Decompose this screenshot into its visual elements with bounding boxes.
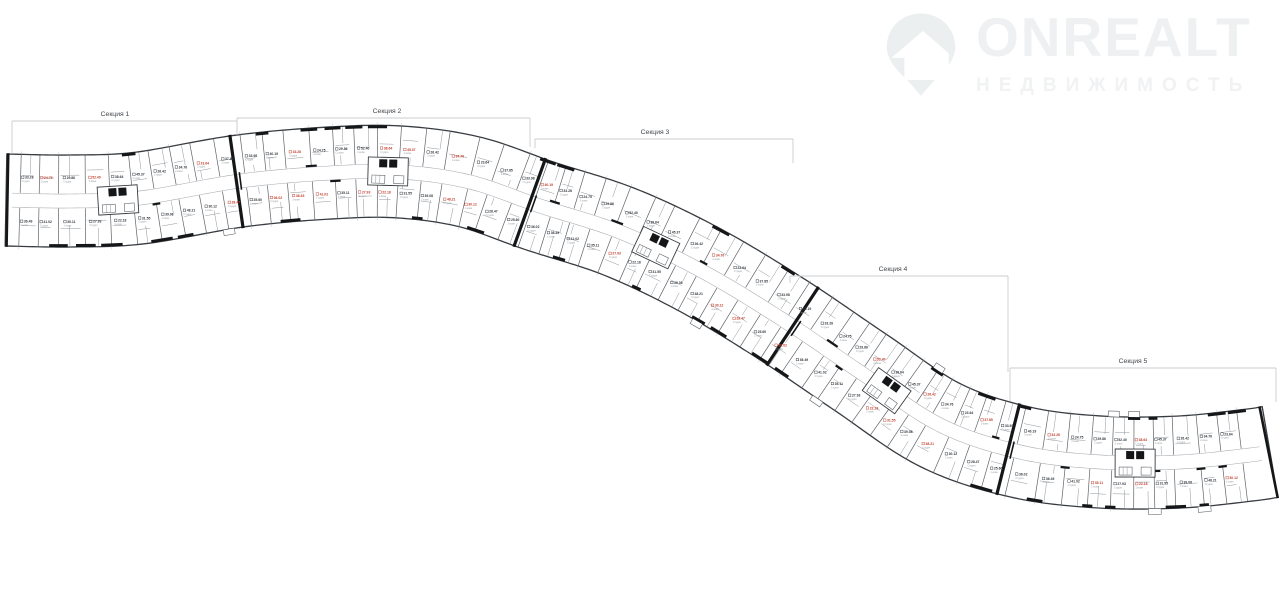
svg-text:40.19: 40.19 [803,307,812,311]
svg-text:1-комн: 1-комн [1135,486,1143,489]
svg-text:35.11: 35.11 [67,220,75,224]
svg-text:26.42: 26.42 [927,392,936,396]
svg-text:Студия: Студия [358,195,367,198]
svg-text:Студия: Студия [477,165,486,168]
svg-text:Студия: Студия [856,350,865,353]
svg-text:38.64: 38.64 [895,371,904,375]
section-label: Секция 3 [641,129,670,136]
svg-text:25.60: 25.60 [994,467,1003,471]
svg-text:28.47: 28.47 [489,210,498,214]
svg-text:24.75: 24.75 [583,195,592,199]
svg-text:Студия: Студия [1177,441,1186,444]
svg-text:28.47: 28.47 [736,317,745,321]
svg-text:31.55: 31.55 [652,270,661,274]
svg-text:37.85: 37.85 [225,157,234,161]
svg-text:45.37: 45.37 [136,173,145,177]
svg-text:33.98: 33.98 [526,177,535,181]
svg-text:26.42: 26.42 [695,242,704,246]
svg-text:1-комн: 1-комн [162,217,170,220]
svg-text:30.12: 30.12 [208,205,217,209]
svg-text:45.37: 45.37 [1158,438,1167,442]
svg-text:1-комн: 1-комн [1042,481,1050,484]
svg-text:30.12: 30.12 [715,304,724,308]
svg-text:26.42: 26.42 [430,150,439,154]
svg-text:40.19: 40.19 [545,183,554,187]
svg-text:23.64: 23.64 [965,411,974,415]
svg-text:38.64: 38.64 [650,220,659,224]
svg-text:Студия: Студия [892,375,901,378]
svg-text:34.76: 34.76 [456,154,465,158]
svg-text:23.64: 23.64 [737,266,746,270]
svg-text:Студия: Студия [1205,483,1214,486]
svg-text:40.19: 40.19 [270,152,279,156]
svg-text:Студия: Студия [316,197,325,200]
svg-text:39.08: 39.08 [904,430,913,434]
svg-text:1-комн: 1-комн [1091,485,1099,488]
svg-text:Студия: Студия [602,206,611,209]
svg-text:28.47: 28.47 [971,460,980,464]
svg-text:1-комн: 1-комн [379,195,387,198]
svg-text:Студия: Студия [289,154,298,157]
svg-text:31.55: 31.55 [1160,482,1169,486]
svg-text:Студия: Студия [967,464,976,467]
floorplan-page: 33.28Студия36.491-комн24.752-комн41.02Ст… [0,0,1280,590]
svg-text:52.40: 52.40 [92,176,101,180]
svg-text:Студия: Студия [21,180,30,183]
svg-text:Студия: Студия [154,174,163,177]
svg-text:2-комн: 2-комн [756,284,764,287]
svg-text:Студия: Студия [609,256,618,259]
svg-text:40.19: 40.19 [1028,429,1037,433]
svg-text:33.28: 33.28 [563,189,572,193]
building-band [5,125,1278,509]
svg-text:2-комн: 2-комн [452,159,460,162]
section-label: Секция 1 [101,111,130,118]
svg-text:Студия: Студия [691,296,700,299]
svg-text:35.11: 35.11 [835,382,843,386]
svg-text:2-комн: 2-комн [175,170,183,173]
svg-text:29.86: 29.86 [339,147,348,151]
svg-text:23.64: 23.64 [481,160,490,164]
svg-text:31.55: 31.55 [142,216,151,220]
svg-text:1-комн: 1-комн [711,308,719,311]
section-label: Секция 5 [1119,358,1148,365]
svg-text:33.28: 33.28 [825,322,834,326]
svg-text:25.60: 25.60 [511,218,520,222]
core [1115,449,1155,477]
svg-text:38.64: 38.64 [384,146,393,150]
svg-text:2-комн: 2-комн [1071,440,1079,443]
svg-text:52.40: 52.40 [877,358,886,362]
svg-text:23.64: 23.64 [201,161,210,165]
svg-text:Студия: Студия [734,270,743,273]
svg-text:2-комн: 2-комн [626,216,634,219]
svg-text:Студия: Студия [245,159,254,162]
svg-text:2-комн: 2-комн [840,339,848,342]
svg-text:48.21: 48.21 [447,198,456,202]
svg-text:2-комн: 2-комн [222,162,230,165]
svg-text:24.75: 24.75 [1075,436,1084,440]
svg-text:31.55: 31.55 [403,192,412,196]
svg-text:Студия: Студия [1094,442,1103,445]
svg-text:29.86: 29.86 [67,176,76,180]
svg-text:37.85: 37.85 [984,418,993,422]
svg-text:45.37: 45.37 [407,148,416,152]
svg-text:27.93: 27.93 [93,220,102,224]
svg-text:30.12: 30.12 [949,452,958,456]
svg-text:1-комн: 1-комн [507,222,515,225]
svg-text:45.37: 45.37 [672,230,681,234]
svg-text:Студия: Студия [647,225,656,228]
svg-text:36.49: 36.49 [1046,477,1055,481]
svg-text:48.21: 48.21 [187,209,196,213]
svg-text:2-комн: 2-комн [541,187,549,190]
svg-text:1-комн: 1-комн [114,223,122,226]
svg-text:39.08: 39.08 [425,194,434,198]
svg-text:41.02: 41.02 [1071,479,1080,483]
svg-text:22.18: 22.18 [1139,482,1148,486]
svg-text:Студия: Студия [1156,486,1165,489]
svg-text:Студия: Студия [336,152,345,155]
svg-text:52.40: 52.40 [629,211,638,215]
svg-text:22.18: 22.18 [632,260,641,264]
svg-text:Студия: Студия [1001,428,1010,431]
svg-text:2-комн: 2-комн [712,258,720,261]
svg-text:37.85: 37.85 [504,168,513,172]
svg-text:Студия: Студия [815,375,824,378]
svg-text:36.49: 36.49 [800,358,809,362]
svg-text:33.98: 33.98 [1005,424,1014,428]
svg-text:Студия: Студия [567,241,576,244]
svg-text:2-комн: 2-комн [981,423,989,426]
svg-text:36.02: 36.02 [1019,472,1028,476]
svg-text:Студия: Студия [1048,438,1057,441]
svg-text:2-комн: 2-комн [266,156,274,159]
svg-text:34.76: 34.76 [1204,435,1213,439]
svg-text:22.18: 22.18 [382,190,391,194]
svg-text:39.08: 39.08 [1184,481,1193,485]
svg-text:1-комн: 1-комн [205,209,213,212]
svg-text:33.98: 33.98 [249,154,258,158]
svg-text:26.42: 26.42 [1181,437,1190,441]
svg-text:26.42: 26.42 [157,169,166,173]
svg-text:33.28: 33.28 [25,176,34,180]
svg-text:36.02: 36.02 [531,225,540,229]
svg-text:33.28: 33.28 [293,150,302,154]
svg-text:31.55: 31.55 [887,418,896,422]
svg-text:37.85: 37.85 [760,279,769,283]
svg-text:25.60: 25.60 [254,198,263,202]
svg-text:Студия: Студия [443,202,452,205]
svg-text:2-комн: 2-комн [668,235,676,238]
svg-text:1-комн: 1-комн [796,362,804,365]
svg-text:2-комн: 2-комн [89,180,97,183]
svg-text:Студия: Студия [270,200,279,203]
section-label: Секция 2 [373,108,402,115]
core [97,185,139,215]
svg-text:Студия: Студия [691,246,700,249]
svg-text:2-комн: 2-комн [1200,439,1208,442]
svg-text:39.08: 39.08 [674,281,683,285]
svg-text:1-комн: 1-комн [629,265,637,268]
svg-text:1-комн: 1-комн [64,224,72,227]
svg-text:28.47: 28.47 [232,201,241,205]
svg-text:34.76: 34.76 [716,253,725,257]
svg-text:Студия: Студия [63,180,72,183]
svg-text:41.02: 41.02 [818,371,827,375]
svg-text:Студия: Студия [89,224,98,227]
svg-text:52.40: 52.40 [361,146,370,150]
svg-text:Студия: Студия [228,205,237,208]
svg-text:Студия: Студия [1015,477,1024,480]
svg-text:22.18: 22.18 [118,219,127,223]
svg-text:27.93: 27.93 [362,190,371,194]
svg-text:35.11: 35.11 [341,191,349,195]
svg-text:27.93: 27.93 [612,252,621,256]
svg-text:Студия: Студия [883,423,892,426]
svg-text:2-комн: 2-комн [909,387,917,390]
svg-text:24.75: 24.75 [317,148,326,152]
svg-text:Студия: Студия [527,229,536,232]
svg-text:Студия: Студия [821,326,830,329]
svg-text:2-комн: 2-комн [357,151,365,154]
svg-text:38.64: 38.64 [1139,438,1148,442]
svg-text:2-комн: 2-комн [1155,442,1163,445]
svg-text:Студия: Студия [922,446,931,449]
svg-text:36.02: 36.02 [274,196,283,200]
svg-text:1-комн: 1-комн [901,434,909,437]
svg-text:36.49: 36.49 [296,194,305,198]
svg-text:35.11: 35.11 [1095,481,1103,485]
svg-text:Студия: Студия [961,416,970,419]
svg-text:34.76: 34.76 [179,165,188,169]
svg-text:41.02: 41.02 [320,192,329,196]
svg-text:30.12: 30.12 [468,203,477,207]
svg-text:2-комн: 2-комн [404,152,412,155]
svg-text:33.28: 33.28 [1051,433,1060,437]
svg-text:29.86: 29.86 [605,202,614,206]
svg-text:1-комн: 1-комн [587,248,595,251]
svg-text:41.02: 41.02 [570,237,579,241]
svg-text:1-комн: 1-комн [990,471,998,474]
svg-text:48.21: 48.21 [694,292,703,296]
svg-text:1-комн: 1-комн [831,386,839,389]
svg-text:1-комн: 1-комн [866,411,874,414]
svg-text:34.76: 34.76 [945,402,954,406]
section-label: Секция 4 [879,266,908,273]
svg-text:Студия: Студия [1221,437,1230,440]
svg-text:Студия: Студия [560,193,569,196]
svg-text:36.02: 36.02 [778,344,787,348]
svg-text:Студия: Студия [523,181,532,184]
svg-text:38.64: 38.64 [115,175,124,179]
svg-text:29.86: 29.86 [1097,437,1106,441]
svg-text:Студия: Студия [1135,442,1144,445]
section-bracket: Секция 5 [1010,358,1276,402]
svg-text:23.64: 23.64 [1224,432,1233,436]
svg-text:1-комн: 1-комн [465,207,473,210]
floorplan-drawing: 33.28Студия36.491-комн24.752-комн41.02Ст… [0,0,1280,590]
core [368,157,409,186]
svg-text:Студия: Студия [40,224,49,227]
svg-text:27.93: 27.93 [852,394,861,398]
svg-text:Студия: Студия [138,221,147,224]
svg-text:1-комн: 1-комн [338,196,346,199]
svg-text:48.21: 48.21 [1208,478,1217,482]
svg-text:39.08: 39.08 [165,213,174,217]
svg-text:Студия: Студия [848,398,857,401]
svg-text:2-комн: 2-комн [799,311,807,314]
svg-text:41.02: 41.02 [43,220,52,224]
svg-text:2-комн: 2-комн [1115,442,1123,445]
svg-text:1-комн: 1-комн [421,198,429,201]
svg-text:29.86: 29.86 [859,345,868,349]
svg-text:2-комн: 2-комн [941,407,949,410]
svg-text:52.40: 52.40 [1118,438,1127,442]
svg-text:1-комн: 1-комн [1180,485,1188,488]
svg-text:Студия: Студия [733,321,742,324]
svg-text:25.60: 25.60 [758,330,767,334]
svg-text:2-комн: 2-комн [501,173,509,176]
svg-text:Студия: Студия [1068,484,1077,487]
svg-text:27.93: 27.93 [1117,482,1126,486]
svg-text:48.21: 48.21 [925,442,934,446]
svg-text:Студия: Студия [778,297,787,300]
svg-text:Студия: Студия [380,151,389,154]
svg-text:36.49: 36.49 [551,231,560,235]
svg-text:Студия: Студия [649,274,658,277]
svg-text:Студия: Студия [111,179,120,182]
svg-text:2-комн: 2-комн [580,199,588,202]
svg-text:1-комн: 1-комн [754,334,762,337]
svg-text:1-комн: 1-комн [20,224,28,227]
svg-text:2-комн: 2-комн [874,362,882,365]
svg-text:24.75: 24.75 [44,176,53,180]
svg-text:Студия: Студия [1114,486,1123,489]
svg-text:24.75: 24.75 [843,334,852,338]
svg-text:36.49: 36.49 [24,220,33,224]
svg-text:Студия: Студия [400,196,409,199]
svg-text:35.11: 35.11 [591,244,599,248]
svg-text:Студия: Студия [924,397,933,400]
svg-text:1-комн: 1-комн [250,202,258,205]
svg-text:30.12: 30.12 [1229,476,1238,480]
section-bracket: Секция 3 [535,129,793,163]
svg-text:Студия: Студия [486,214,495,217]
svg-text:2-комн: 2-комн [133,177,141,180]
svg-text:Студия: Студия [427,155,436,158]
svg-text:1-комн: 1-комн [1226,480,1234,483]
svg-text:22.18: 22.18 [870,406,879,410]
svg-text:1-комн: 1-комн [292,198,300,201]
svg-text:Студия: Студия [183,213,192,216]
svg-text:1-комн: 1-комн [671,285,679,288]
svg-text:Студия: Студия [197,166,206,169]
svg-text:33.98: 33.98 [781,293,790,297]
svg-text:45.37: 45.37 [912,382,921,386]
svg-text:2-комн: 2-комн [41,180,49,183]
svg-text:1-комн: 1-комн [547,235,555,238]
svg-text:2-комн: 2-комн [1024,434,1032,437]
svg-text:1-комн: 1-комн [945,457,953,460]
svg-text:2-комн: 2-комн [313,153,321,156]
svg-text:Студия: Студия [775,348,784,351]
